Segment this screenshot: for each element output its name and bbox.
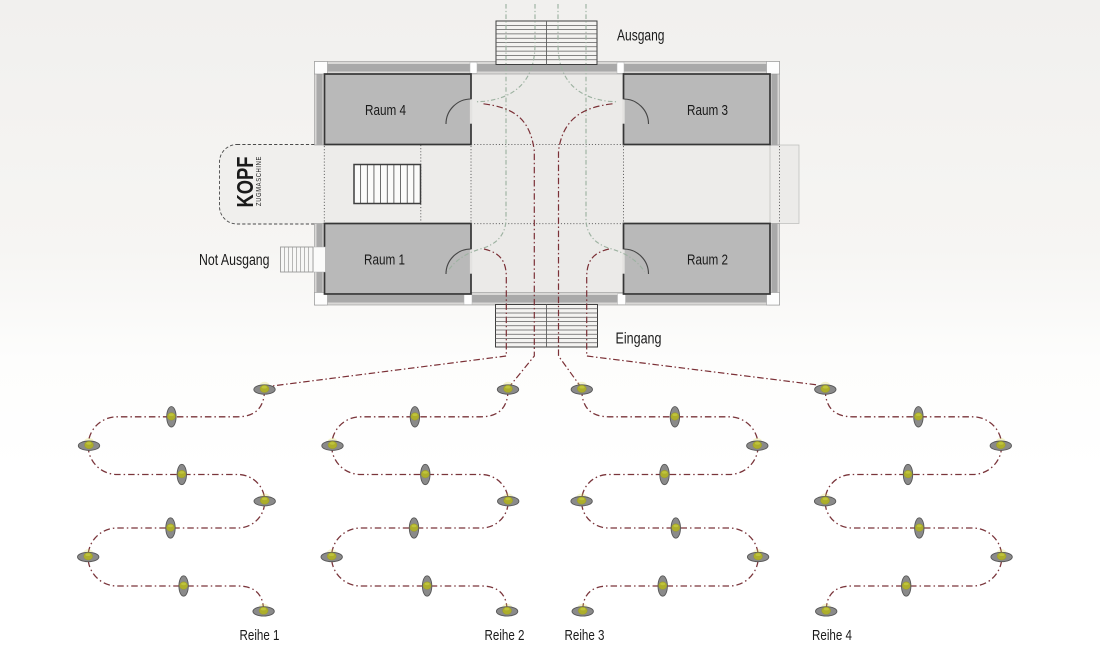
svg-text:Eingang: Eingang — [616, 331, 662, 348]
svg-text:Reihe 4: Reihe 4 — [812, 627, 852, 644]
svg-text:Reihe 3: Reihe 3 — [565, 627, 605, 644]
svg-text:Raum 2: Raum 2 — [687, 252, 728, 268]
svg-text:Raum 1: Raum 1 — [364, 252, 405, 268]
svg-text:Raum 4: Raum 4 — [365, 103, 406, 119]
svg-text:Reihe 2: Reihe 2 — [485, 627, 525, 644]
svg-text:Not Ausgang: Not Ausgang — [199, 252, 270, 269]
svg-text:Reihe 1: Reihe 1 — [240, 627, 280, 644]
svg-text:Raum 3: Raum 3 — [687, 103, 728, 119]
svg-text:Ausgang: Ausgang — [617, 28, 665, 45]
svg-text:ZUGMASCHINE: ZUGMASCHINE — [254, 156, 263, 206]
